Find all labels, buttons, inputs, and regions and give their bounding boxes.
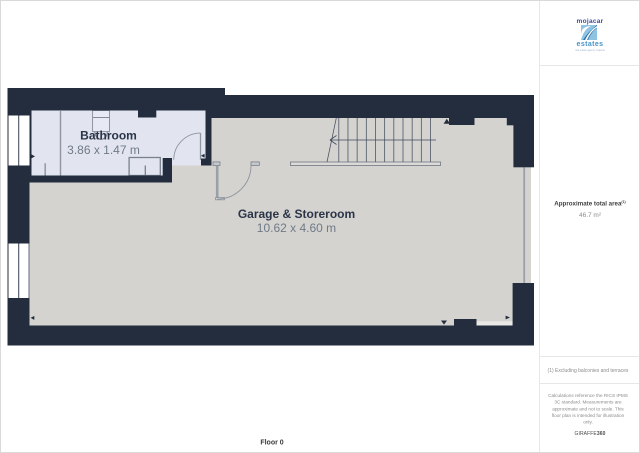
svg-text:10.62 x 4.60 m: 10.62 x 4.60 m — [257, 221, 336, 235]
svg-text:Bathroom: Bathroom — [80, 129, 137, 143]
svg-text:Floor 0: Floor 0 — [260, 440, 283, 447]
svg-text:Garage & Storeroom: Garage & Storeroom — [238, 207, 355, 221]
svg-text:3.86 x 1.47 m: 3.86 x 1.47 m — [67, 143, 140, 157]
